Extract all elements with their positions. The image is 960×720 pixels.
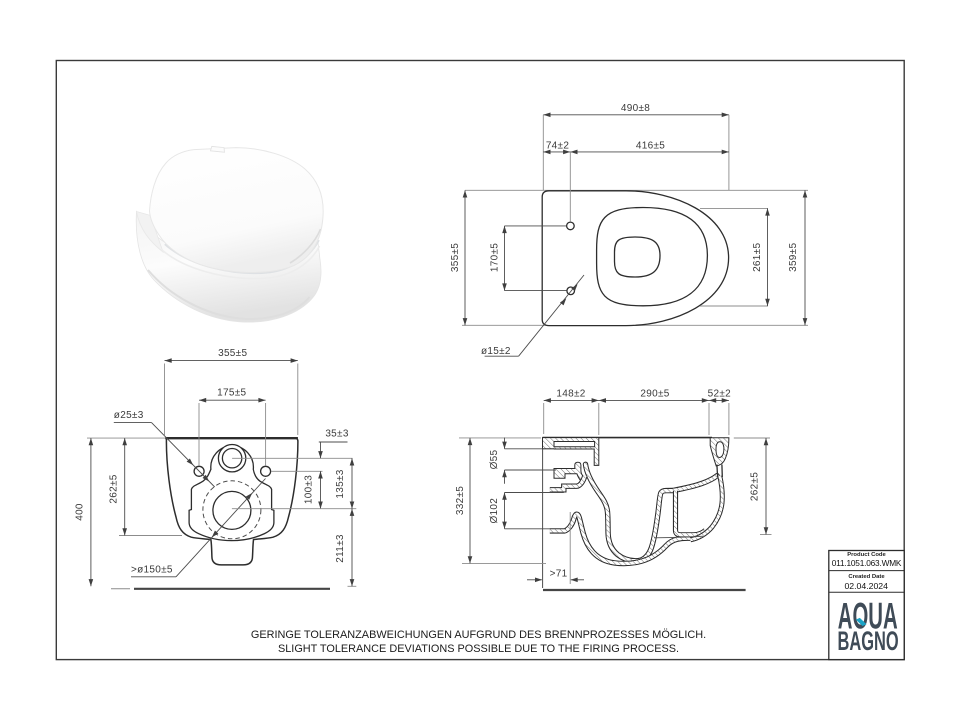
svg-text:011.1051.063.WMK: 011.1051.063.WMK	[832, 558, 902, 568]
svg-text:135±3: 135±3	[335, 469, 346, 498]
svg-text:100±3: 100±3	[304, 475, 315, 504]
svg-text:Ø55: Ø55	[489, 449, 500, 469]
svg-text:ø25±3: ø25±3	[114, 410, 144, 421]
svg-text:355±5: 355±5	[450, 243, 461, 272]
svg-text:175±5: 175±5	[217, 388, 246, 399]
svg-text:Created Date: Created Date	[848, 574, 885, 580]
svg-text:416±5: 416±5	[636, 141, 665, 152]
svg-text:355±5: 355±5	[218, 348, 247, 359]
svg-text:170±5: 170±5	[489, 243, 500, 272]
svg-text:261±5: 261±5	[752, 243, 763, 272]
svg-text:ø15±2: ø15±2	[481, 346, 511, 357]
svg-text:GERINGE TOLERANZABWEICHUNGEN A: GERINGE TOLERANZABWEICHUNGEN AUFGRUND DE…	[251, 629, 706, 641]
svg-text:74±2: 74±2	[546, 141, 570, 152]
svg-text:148±2: 148±2	[556, 388, 585, 399]
svg-text:SLIGHT TOLERANCE DEVIATIONS PO: SLIGHT TOLERANCE DEVIATIONS POSSIBLE DUE…	[278, 643, 679, 655]
svg-text:02.04.2024: 02.04.2024	[844, 581, 888, 591]
svg-text:332±5: 332±5	[455, 486, 466, 515]
svg-text:359±5: 359±5	[788, 243, 799, 272]
svg-text:35±3: 35±3	[325, 428, 349, 439]
svg-text:400: 400	[75, 503, 86, 521]
svg-text:490±8: 490±8	[621, 103, 650, 114]
svg-text:262±5: 262±5	[109, 474, 120, 503]
svg-text:211±3: 211±3	[335, 534, 346, 563]
svg-text:>71: >71	[550, 569, 568, 580]
svg-text:>ø150±5: >ø150±5	[131, 565, 173, 576]
svg-text:290±5: 290±5	[640, 388, 669, 399]
svg-text:52±2: 52±2	[708, 388, 732, 399]
svg-text:262±5: 262±5	[750, 472, 761, 501]
svg-text:Ø102: Ø102	[489, 498, 500, 524]
svg-text:BAGNO: BAGNO	[838, 626, 899, 656]
